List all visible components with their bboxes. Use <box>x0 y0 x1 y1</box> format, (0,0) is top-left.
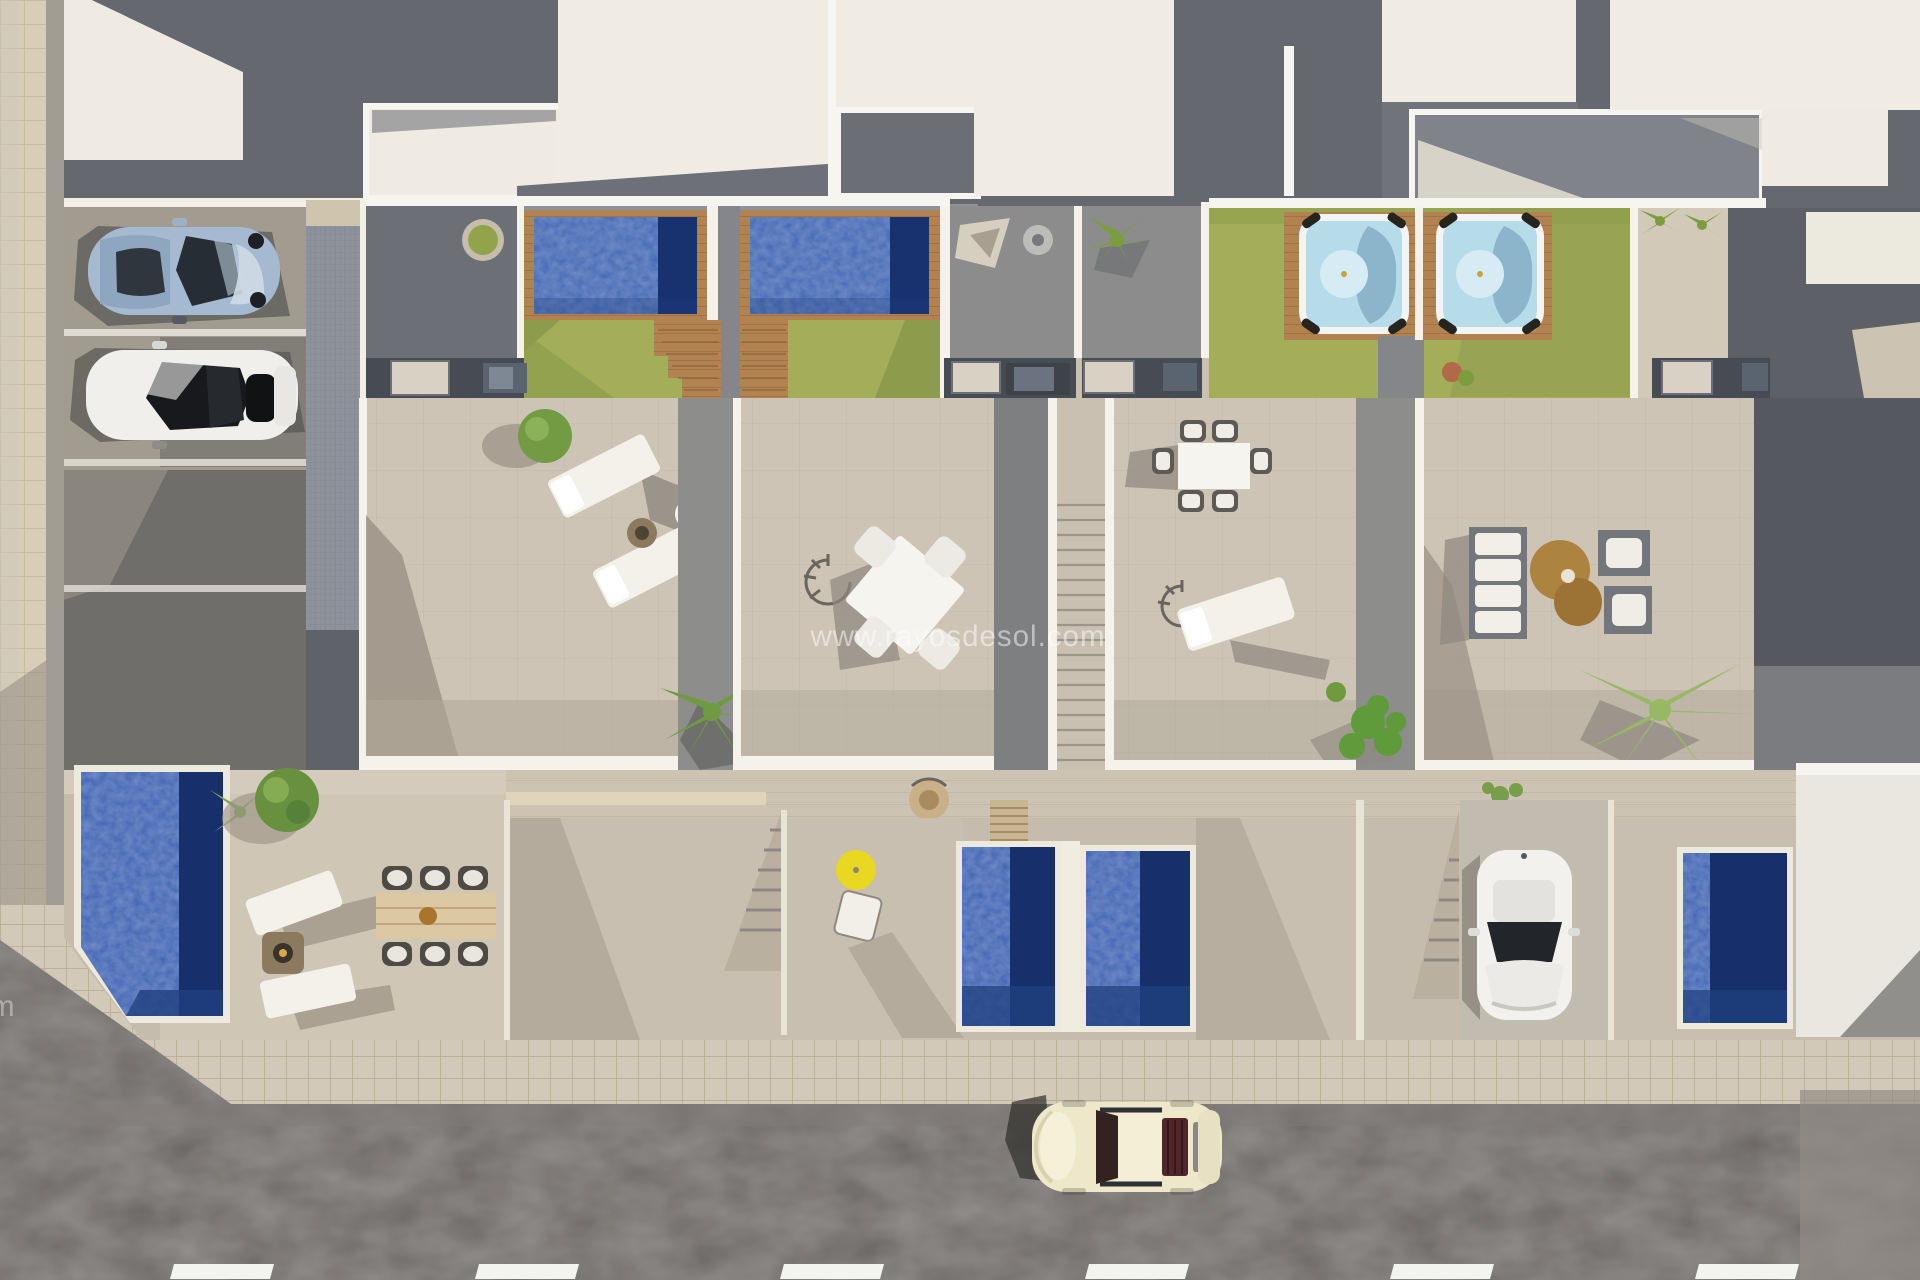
svg-text:m: m <box>0 990 16 1023</box>
svg-text:www.rayosdesol.com: www.rayosdesol.com <box>809 620 1105 653</box>
